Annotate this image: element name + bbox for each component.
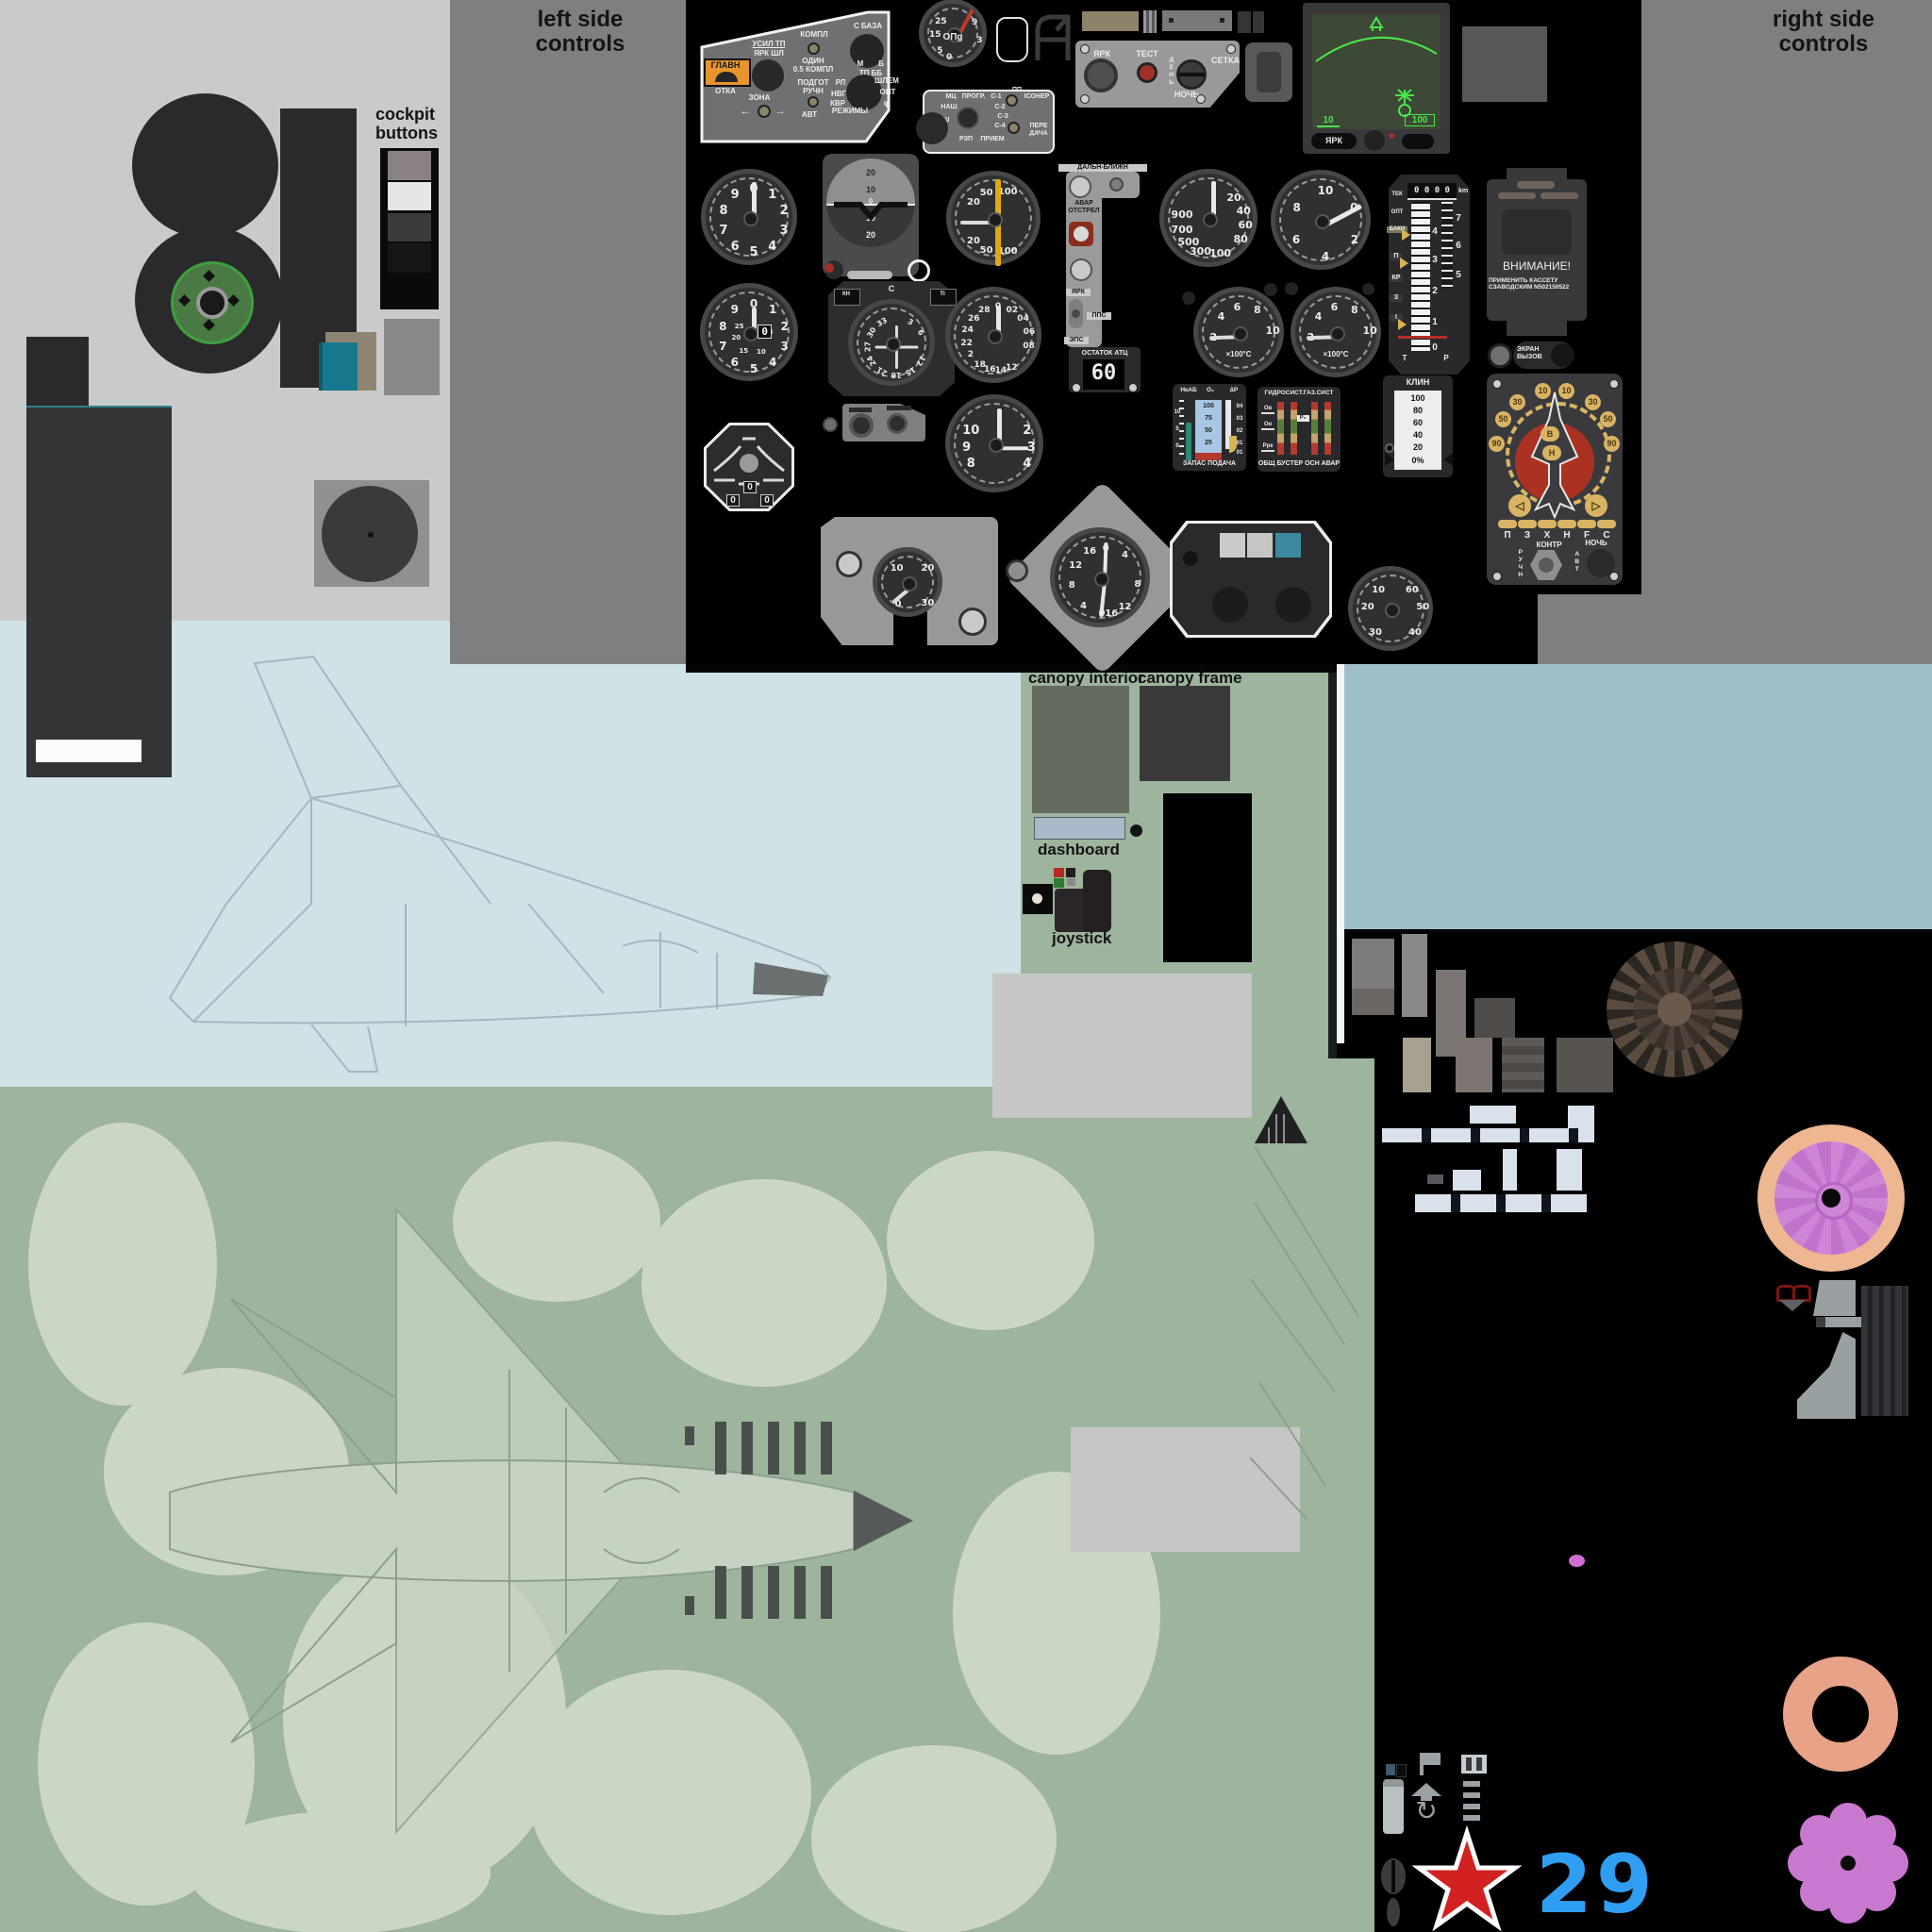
small-pressure-gauge: 106020503040 (1348, 566, 1433, 651)
crt-range-max: 100 (1405, 114, 1435, 126)
dial-number: 26 (963, 314, 984, 324)
spo-ruchn-label: РУЧН (1517, 549, 1524, 579)
canopy-frame-texture (1140, 686, 1230, 781)
icon-oval-large-slit (1391, 1860, 1395, 1892)
atc-value: 60 (1083, 362, 1124, 386)
backup-adi-zero-3: 0 (760, 494, 774, 507)
dial-number: 16 (1079, 546, 1100, 557)
dial-number: 12 (1065, 560, 1086, 571)
label-canopy-interior: canopy interior (1028, 670, 1144, 688)
screw (1072, 383, 1081, 392)
swatch-white (388, 182, 431, 210)
gray-box-dot (1169, 18, 1174, 23)
dial-number: 6 (1286, 233, 1307, 246)
spo-lamp-10-right: 10 (1558, 383, 1574, 399)
dial-number: 2 (1017, 424, 1038, 438)
spo-lamp-bar (1518, 520, 1537, 528)
srzo-s3: С-3 (993, 113, 1012, 121)
adi-wings-symbol (826, 158, 915, 247)
oxygen-red-base (1195, 453, 1222, 460)
screw (1492, 572, 1502, 581)
wing-sketch-lines (1250, 1146, 1373, 1524)
srzo-knob-left (916, 112, 948, 144)
dial-number: 4 (762, 240, 783, 254)
dashboard-texture-bar (1034, 817, 1125, 840)
phi-label: φ (877, 98, 896, 108)
oxygen-r01a: 01 (1234, 441, 1245, 447)
fuel-km: km (1457, 188, 1470, 195)
oxygen-b100: 100 (1195, 403, 1222, 410)
dial-number: 24 (958, 325, 978, 335)
spo-lamp-n: Н (1542, 445, 1561, 460)
teal-part (319, 342, 358, 391)
dial-number: 700 (1172, 224, 1192, 236)
fuel-r: Р (1441, 355, 1451, 363)
dial-hub (1233, 326, 1248, 341)
dial-hub (988, 329, 1003, 344)
fuel-btn-kr: КР (1390, 275, 1403, 282)
mini-panel-knob-right (887, 413, 908, 434)
fuel-t: Т (1400, 355, 1409, 363)
crt-range-min: 10 (1317, 115, 1340, 127)
spo-lamp-50-left: 50 (1495, 411, 1511, 427)
zona-arrow-right: → (774, 106, 787, 117)
decal-white-c (1503, 1149, 1517, 1191)
srzo-mc: МЦ (941, 93, 960, 101)
spo-lamp-30-right: 30 (1585, 394, 1601, 410)
spo-lamp-10-left: 10 (1535, 383, 1551, 399)
avar-top-label: ДАЛЬН-БЛИЖН (1058, 164, 1147, 172)
dial-number: 4 (1017, 457, 1038, 471)
vnimanie-bar (1517, 181, 1555, 189)
dial-number: 10 (960, 424, 981, 438)
m-label: М (855, 60, 866, 69)
hydro-rrk: Ррк (1261, 443, 1274, 452)
dial-number: 80 (1230, 233, 1251, 245)
hydro-bar (1291, 402, 1297, 455)
dial-hub (902, 576, 917, 591)
spo-letter-z: З (1518, 530, 1537, 541)
dial-number: 8 (1247, 304, 1268, 316)
dial-number: 5 (743, 245, 764, 259)
octagon-dot (1183, 551, 1198, 566)
seat-bar (1816, 1317, 1863, 1327)
spo-lamp-v: В (1541, 426, 1559, 441)
part-gray-a2 (1352, 989, 1394, 1015)
small-cap (1285, 282, 1298, 295)
ekran-label: ЭКРАН ВЫЗОВ (1517, 346, 1553, 361)
joystick-texture-grip (1083, 870, 1111, 932)
srzo-priem: ПРИЕМ (976, 136, 1008, 143)
spo-lamp-bar (1498, 520, 1517, 528)
spo-lamp-50-right: 50 (1600, 411, 1616, 427)
crt-yark-label: ЯРК (1311, 136, 1357, 145)
pressure-gauge: 1020300 (873, 547, 942, 617)
crt-knob (1364, 130, 1385, 151)
avar-fire-label: АВАР ОТСТРЕЛ (1060, 200, 1108, 215)
ekran-button-left (1488, 343, 1512, 368)
spo-lamp-90-left: 90 (1489, 436, 1505, 452)
hydro-on: Он (1261, 422, 1274, 430)
test-button-red (1137, 62, 1158, 83)
mini-panel-textbar (887, 406, 911, 410)
chrono-clock-gauge: 1023489 (945, 394, 1043, 492)
seat-headrest (1813, 1280, 1856, 1316)
swatch-red (1054, 868, 1064, 877)
label-left-side-controls: left side controls (509, 8, 651, 58)
oxygen-h1: НкАБ (1176, 387, 1201, 393)
icon-ladder-rung (1463, 1781, 1480, 1787)
screw (1128, 383, 1138, 392)
dial-number: 900 (1172, 208, 1192, 221)
zona-label: ЗОНА (741, 94, 778, 103)
dial-hub (989, 438, 1004, 453)
fuel-r7: 7 (1454, 213, 1463, 224)
dial-number: 06 (1019, 327, 1040, 337)
dial-number: 25 (930, 17, 951, 26)
decal-white-e (1453, 1170, 1481, 1191)
avar-eps-label: ЭПС (1064, 337, 1089, 344)
srzo-pere: ПЕРЕ ДАЧА (1023, 123, 1055, 138)
dial-number: 20 (963, 197, 984, 208)
wheel-hub-center (196, 287, 228, 319)
glavn-label: ГЛАВН (704, 60, 747, 70)
dial-number: 10 (1359, 325, 1380, 337)
hydro-title: ГИДРОСИСТ.ГАЗ.СИСТ (1257, 390, 1341, 396)
yark-knob (1084, 58, 1118, 92)
adi-white-ring (908, 259, 930, 282)
rezhimy-label: РЕЖИМЫ (826, 108, 874, 116)
srzo-s1: С-1 (987, 93, 1006, 101)
avar-red-button (1074, 226, 1089, 241)
octagon-square-white (1220, 533, 1245, 558)
dial-number: 02 (1002, 306, 1023, 315)
decal-gray-f (1427, 1174, 1443, 1184)
vnimanie-tab-bottom (1507, 321, 1567, 336)
dial-drum-window: 0 (758, 325, 772, 339)
combined-speed-gauge: 20406080100300500700900 (1159, 169, 1257, 267)
mini-panel-textbar (849, 408, 872, 412)
dial-number: 4 (762, 356, 783, 369)
dial-number: 9 (724, 303, 745, 316)
fuel-tape-white (1411, 202, 1430, 351)
fuel-l1: 1 (1430, 317, 1440, 327)
dial-needle (995, 223, 1001, 266)
dial-number: 8 (1061, 580, 1082, 591)
clock-gauge: 0123456789 (701, 169, 797, 265)
joystick-swatch-dot (1032, 893, 1042, 904)
setka-label: СЕТКА (1206, 56, 1245, 65)
swatch-charcoal (388, 243, 431, 273)
dial-hub (1330, 326, 1345, 341)
vnimanie-title: ВНИМАНИЕ! (1487, 260, 1587, 273)
part-gray-a (1352, 939, 1394, 989)
fuel-tek: ТЕК (1389, 192, 1406, 198)
kompl-label: КОМПЛ (792, 31, 836, 40)
part-khaki-c (1403, 1038, 1431, 1092)
dial-number: 60 (1402, 585, 1423, 595)
spo-hex-knob-center (1539, 558, 1554, 573)
octagon-knob-right (1275, 587, 1311, 623)
dial-number: 2 (960, 350, 981, 359)
decal-white-d (1557, 1149, 1582, 1191)
oxygen-r04: 04 (1234, 404, 1245, 410)
dial-number: 30 (917, 598, 938, 608)
salmon-ring-hole (1812, 1686, 1869, 1742)
spo-lamp-30-left: 30 (1509, 394, 1525, 410)
dial-number: 10 (751, 348, 772, 356)
test-label: ТЕСТ (1130, 49, 1164, 58)
yark-shl-label: ЯРК ШЛ (745, 50, 792, 58)
dial-number: 2 (1344, 233, 1365, 246)
towbar-icon (1030, 11, 1075, 62)
klin-arrow-right (1443, 453, 1453, 466)
klin-20: 20 (1394, 442, 1441, 452)
small-part-dark (26, 337, 89, 407)
oxygen-r02: 02 (1234, 428, 1245, 435)
fuel-opt: ОПТ (1389, 209, 1406, 216)
podgot-knob (808, 96, 819, 108)
oxygen-s10: 10 (1173, 409, 1182, 416)
screw (1080, 44, 1090, 54)
srzo-knob-main (957, 107, 979, 129)
rmi-compass-gauge: 361215182124273033 (848, 299, 935, 386)
dial-number: 60 (1235, 219, 1256, 231)
dial-number: 6 (1324, 301, 1344, 313)
dial-hub (988, 212, 1003, 227)
den-noch-knob-slot (1179, 73, 1204, 76)
spo-letter-n: Н (1557, 530, 1576, 541)
hydro-bar (1311, 402, 1318, 455)
gray-part (384, 319, 440, 395)
dial-hub (743, 211, 758, 226)
icon-square-blue (1386, 1764, 1395, 1775)
rmi-window-left-label: КН (834, 291, 858, 298)
spo-lamp-bar (1538, 520, 1557, 528)
octagon-square-teal (1275, 533, 1301, 558)
srzo-btn-bottom (1008, 122, 1020, 134)
bracket-knob-right (958, 608, 987, 636)
dark-box-b (1253, 11, 1264, 33)
hydro-p2: Р₂ (1296, 415, 1309, 422)
s-baza-label: С БАЗА (847, 23, 889, 31)
dial-number: 1 (762, 188, 783, 202)
tire-top (132, 93, 278, 238)
dial-number: 08 (1019, 341, 1040, 351)
dashboard-dot (1130, 824, 1142, 837)
dial-number: 5 (743, 362, 764, 375)
screw (1492, 379, 1502, 389)
fuel-r6: 6 (1454, 241, 1463, 251)
fuel-bug-2 (1400, 258, 1408, 269)
seam-dark-strip (1328, 664, 1337, 1058)
avar-yark-label: ЯРК (1066, 289, 1091, 296)
fuel-l3: 3 (1430, 255, 1440, 265)
fuel-l0: 0 (1430, 342, 1440, 353)
dial-number: 3 (774, 340, 795, 353)
dial-hub (743, 326, 758, 341)
screw (1226, 44, 1236, 54)
striped-box (1143, 10, 1157, 33)
fuel-bug-1 (1402, 229, 1410, 241)
dial-number: 20 (1224, 192, 1244, 204)
dial-number: 6 (1226, 301, 1247, 313)
dial-number: 500 (1177, 236, 1198, 248)
ammo-counter-gauge: 25155093ОПg (919, 0, 987, 67)
texture-atlas: left side controls right side controls c… (0, 0, 1932, 1932)
fan-hole (1822, 1189, 1840, 1207)
icon-circular-arrow: ↻ (1411, 1796, 1441, 1826)
dial-number: 2 (774, 204, 794, 218)
den-label: ДЕНЬ (1168, 57, 1174, 87)
label-cockpit-buttons: cockpit buttons (375, 106, 460, 143)
avar-oval-knob-dot (1072, 309, 1080, 318)
klin-100: 100 (1394, 393, 1441, 403)
fuel-redline (1398, 336, 1447, 339)
part-striped-f (1502, 1038, 1544, 1092)
klin-knob (1385, 443, 1394, 453)
decal-white-bar2 (1415, 1194, 1588, 1212)
dial-number: 1 (762, 303, 783, 316)
dial-hub (1203, 212, 1218, 227)
swatch-midgray (1067, 878, 1075, 886)
bracket-knob-left (836, 551, 862, 577)
vnimanie-bar (1498, 192, 1536, 199)
klin-title: КЛИН (1383, 377, 1453, 387)
dial-number: 50 (1412, 602, 1433, 612)
magenta-dot (1569, 1555, 1585, 1567)
dial-number: 4 (1315, 250, 1336, 263)
avar-round-button (1070, 258, 1092, 281)
fuel-btn-z: З (1390, 294, 1403, 302)
decal-white-bar1 (1382, 1128, 1594, 1142)
klin-80: 80 (1394, 406, 1441, 415)
octagon-knob-left (1212, 587, 1248, 623)
srzo-soner: ІСОНЕР (1021, 93, 1053, 101)
fuel-r5: 5 (1454, 270, 1463, 280)
adi-slider (847, 271, 892, 279)
hydro-bar (1324, 402, 1331, 455)
vnimanie-text: ПРИМЕНИТЬ КАССЕТУ СЗАВОДСКИМ N502150522 (1489, 277, 1585, 291)
spo-noch-label: НОЧЬ (1577, 540, 1615, 548)
oxygen-s5: 5 (1174, 426, 1181, 433)
srzo-progr: ПРОГР. (959, 93, 988, 101)
screw (1196, 94, 1206, 104)
b-label: Б (875, 60, 887, 69)
hydro-bottom: ОБЩ БУСТЕР ОСН АВАР (1255, 460, 1343, 468)
decal-white-b (1568, 1106, 1594, 1128)
disc-part-dot (368, 532, 374, 538)
crt-graphics (1312, 14, 1441, 129)
fin-tip-sketch (1250, 1090, 1316, 1151)
dial-number: 100 (1209, 247, 1230, 259)
avar-pps-label: ППС (1087, 312, 1111, 320)
egt-left-gauge: 246810×100°C (1193, 287, 1284, 377)
atc-title: ОСТАТОК АТЦ (1069, 350, 1141, 358)
spo-avt-label: АВТ (1574, 551, 1580, 574)
spo-letter-x: Х (1538, 530, 1557, 541)
dial-number: 3 (774, 224, 794, 238)
helmet-outline-icon (996, 17, 1028, 62)
dial-label: ОПg (924, 32, 982, 42)
variometer-gauge: 20501002050100 (946, 171, 1041, 265)
label-joystick: joystick (1052, 930, 1111, 948)
dark-box-a (1238, 11, 1251, 33)
dial-hub (1094, 572, 1109, 587)
fuel-l4: 4 (1430, 226, 1440, 237)
region-black-parts (1344, 929, 1932, 1932)
klin-40: 40 (1394, 430, 1441, 440)
klin-60: 60 (1394, 418, 1441, 427)
weapons-knob-left (752, 59, 784, 92)
spo-noch-knob (1587, 549, 1615, 577)
frame-part-inner (1257, 52, 1281, 92)
klin-arrow-left (1385, 453, 1394, 466)
dial-number: 8 (960, 457, 981, 471)
avt-label: АВТ (795, 111, 824, 120)
dial-number: 50 (976, 245, 997, 256)
true-airspeed-gauge: 00204060812141618222242628 (945, 287, 1041, 383)
odin-label: ОДИН 0.5 КОМПЛ (789, 58, 838, 75)
oxygen-h2: О₂ (1204, 387, 1217, 393)
spo-arrow-left-lamp: ◁ (1508, 494, 1531, 517)
crt-blank-button (1402, 134, 1434, 149)
red-star-decal (1410, 1825, 1524, 1932)
screw (1080, 94, 1090, 104)
backup-adi-zero-2: 0 (726, 494, 740, 507)
dial-number: 6 (724, 240, 745, 254)
oxygen-b75: 75 (1195, 415, 1222, 423)
canopy-interior-texture (1032, 686, 1129, 813)
swatch-dark (1066, 868, 1075, 877)
srzo-btn-top (1006, 94, 1018, 107)
dial-hub (886, 337, 901, 352)
backup-adi-graphics (707, 425, 791, 508)
dial-number: 9 (724, 188, 745, 202)
spo-aircraft-symbol (1528, 391, 1581, 532)
dial-number: 9 (957, 441, 977, 455)
rmi-north: С (885, 284, 898, 293)
dial-number: 40 (1233, 205, 1254, 217)
fuel-bug-3 (1398, 319, 1407, 330)
ribbed-panel (1861, 1286, 1908, 1416)
icon-cylinder (1383, 1779, 1404, 1834)
dial-number: 4 (1115, 550, 1136, 560)
backup-adi-zero-1: 0 (743, 481, 757, 493)
dial-label: ×100°C (1295, 350, 1376, 358)
hydro-ov: Ов (1261, 406, 1274, 414)
icon-ladder-slot (1466, 1757, 1472, 1771)
dial-number: 30 (1365, 627, 1386, 638)
adi-red-flag (824, 263, 834, 273)
lens-cap (823, 417, 838, 432)
dial-number: 22 (957, 339, 977, 348)
purple-flower (1791, 1807, 1905, 1920)
dial-number: 40 (1405, 627, 1425, 638)
oxygen-b25: 25 (1195, 440, 1222, 447)
gray-box-dot (1220, 18, 1224, 23)
drum-altimeter-gauge: 01234567892520151050 (700, 283, 798, 381)
label-right-side-controls: right side controls (1753, 8, 1894, 58)
dial-number: 7 (713, 224, 734, 238)
icon-square-black (1396, 1764, 1407, 1777)
canopy-glass-black (1163, 793, 1252, 962)
icon-oval-small (1387, 1898, 1400, 1926)
screw (1609, 379, 1619, 389)
part-gray-e (1456, 1038, 1492, 1092)
hydro-bar (1277, 402, 1284, 455)
dial-number: 8 (1344, 304, 1365, 316)
